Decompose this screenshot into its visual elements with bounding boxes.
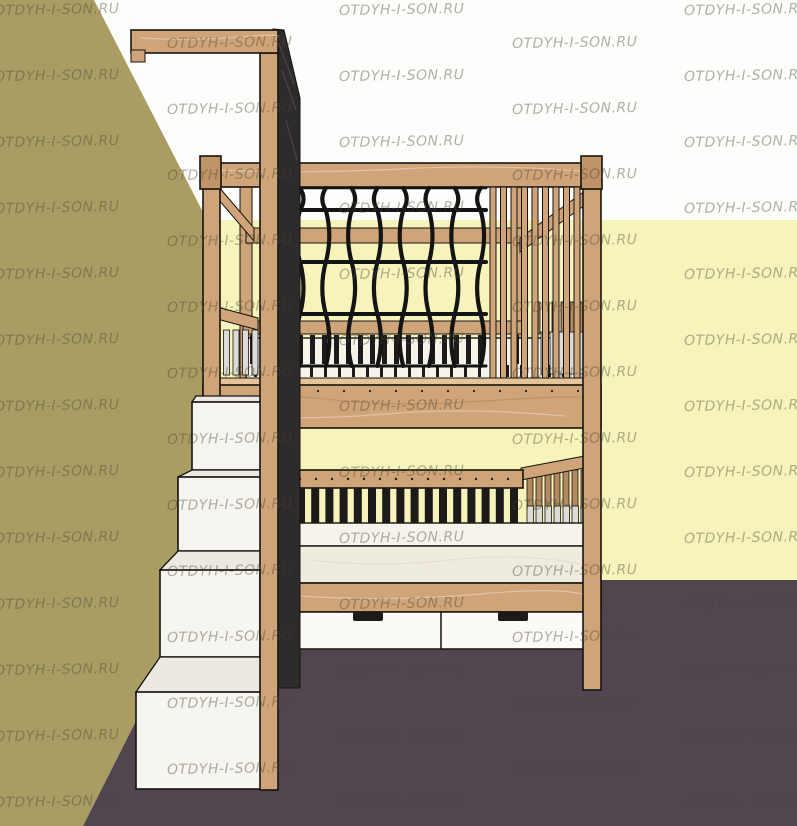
- front-slat: [532, 187, 538, 378]
- step-tread-1: [192, 396, 265, 402]
- end-baluster: [554, 470, 560, 508]
- drawer-handle-right: [498, 612, 528, 621]
- screw-dot: [395, 390, 397, 392]
- under-bed-drawers: [296, 612, 592, 649]
- bunk-bed-3d-scene: [0, 0, 797, 826]
- step-front-1: [192, 402, 263, 470]
- screw-dot: [473, 390, 475, 392]
- guard-slat: [382, 488, 390, 523]
- screw-dot: [551, 390, 553, 392]
- screw-dot: [447, 390, 449, 392]
- end-slat: [233, 330, 239, 375]
- guard-slat: [425, 488, 433, 523]
- screw-dot: [411, 478, 413, 480]
- screw-dot: [343, 390, 345, 392]
- step-front-4: [136, 692, 262, 789]
- front-slat: [574, 187, 580, 378]
- baluster: [442, 335, 447, 364]
- top-rail-right-cap: [581, 156, 602, 189]
- step-tread-2: [178, 470, 263, 477]
- guard-slat: [396, 488, 404, 523]
- screw-dot: [363, 478, 365, 480]
- baluster: [418, 335, 423, 364]
- screw-dot: [443, 478, 445, 480]
- baluster: [358, 335, 363, 364]
- screw-dot: [395, 478, 397, 480]
- screw-dot: [369, 390, 371, 392]
- front-slat: [553, 187, 559, 378]
- lower-mattress-front: [293, 546, 592, 583]
- guard-slat: [510, 488, 518, 523]
- front-slat: [564, 187, 570, 378]
- step-tread-3: [160, 551, 261, 570]
- room-render: OTDYH-I-SON.RUOTDYH-I-SON.RUOTDYH-I-SON.…: [0, 0, 797, 826]
- guard-slat: [311, 488, 319, 523]
- end-slat: [224, 330, 230, 375]
- guard-slat: [496, 488, 504, 523]
- screw-dot: [427, 478, 429, 480]
- guard-slat: [482, 488, 490, 523]
- screw-dot: [507, 478, 509, 480]
- ladder-front-post: [260, 53, 278, 790]
- front-slat: [522, 187, 528, 378]
- end-baluster: [563, 470, 569, 508]
- screw-dot: [491, 478, 493, 480]
- top-rail-left-cap: [200, 156, 221, 189]
- end-baluster: [572, 470, 578, 508]
- baluster: [406, 335, 411, 364]
- end-slat: [252, 330, 258, 375]
- lower-mattress-top: [293, 523, 592, 546]
- screw-dot: [331, 478, 333, 480]
- guard-slat: [467, 488, 475, 523]
- screw-dot: [317, 390, 319, 392]
- guard-slat: [411, 488, 419, 523]
- drawer-handle-left: [353, 612, 383, 621]
- beam-end-cap: [131, 50, 145, 62]
- top-grab-beam: [131, 30, 278, 53]
- baluster: [466, 335, 471, 364]
- guard-slat: [340, 488, 348, 523]
- screw-dot: [475, 478, 477, 480]
- screw-dot: [315, 478, 317, 480]
- guard-slat: [453, 488, 461, 523]
- front-slat: [490, 187, 496, 378]
- guard-slat: [325, 488, 333, 523]
- baluster: [310, 335, 315, 364]
- front-right-post: [583, 158, 601, 690]
- baluster: [334, 335, 339, 364]
- screw-dot: [347, 478, 349, 480]
- screw-dot: [525, 390, 527, 392]
- screw-dot: [577, 390, 579, 392]
- front-slat: [501, 187, 507, 378]
- end-slat: [243, 330, 249, 375]
- baluster: [370, 335, 375, 364]
- step-front-2: [178, 477, 261, 551]
- screw-dot: [459, 478, 461, 480]
- screw-dot: [421, 390, 423, 392]
- step-front-3: [160, 570, 260, 657]
- front-slat: [543, 187, 549, 378]
- front-slat: [511, 187, 517, 378]
- screw-dot: [499, 390, 501, 392]
- screw-dot: [379, 478, 381, 480]
- upper-front-slats: [490, 187, 580, 378]
- guard-slat: [439, 488, 447, 523]
- guard-slat: [368, 488, 376, 523]
- lower-guard-rail: [293, 470, 523, 488]
- guard-slat: [354, 488, 362, 523]
